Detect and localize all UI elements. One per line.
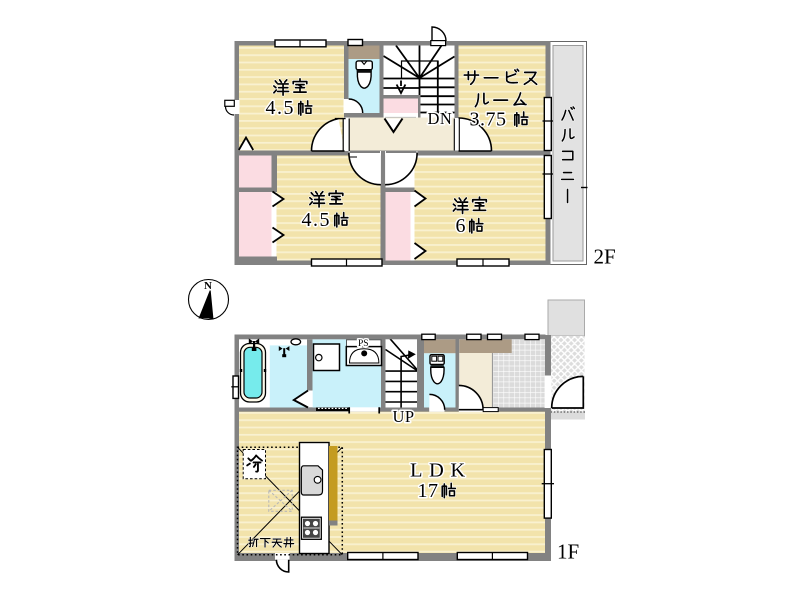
svg-text:3.75: 3.75: [470, 108, 507, 130]
svg-text:PS: PS: [358, 339, 369, 349]
svg-text:N: N: [204, 280, 212, 292]
svg-text:4.5: 4.5: [266, 97, 296, 119]
svg-text:17: 17: [418, 480, 439, 502]
svg-text:DN: DN: [428, 109, 453, 128]
svg-text:UP: UP: [393, 407, 415, 426]
svg-text:1F: 1F: [557, 540, 579, 564]
svg-text:2F: 2F: [594, 245, 616, 269]
svg-text:6: 6: [456, 215, 466, 237]
svg-text:LDK: LDK: [410, 460, 472, 482]
svg-text:4.5: 4.5: [302, 209, 332, 231]
